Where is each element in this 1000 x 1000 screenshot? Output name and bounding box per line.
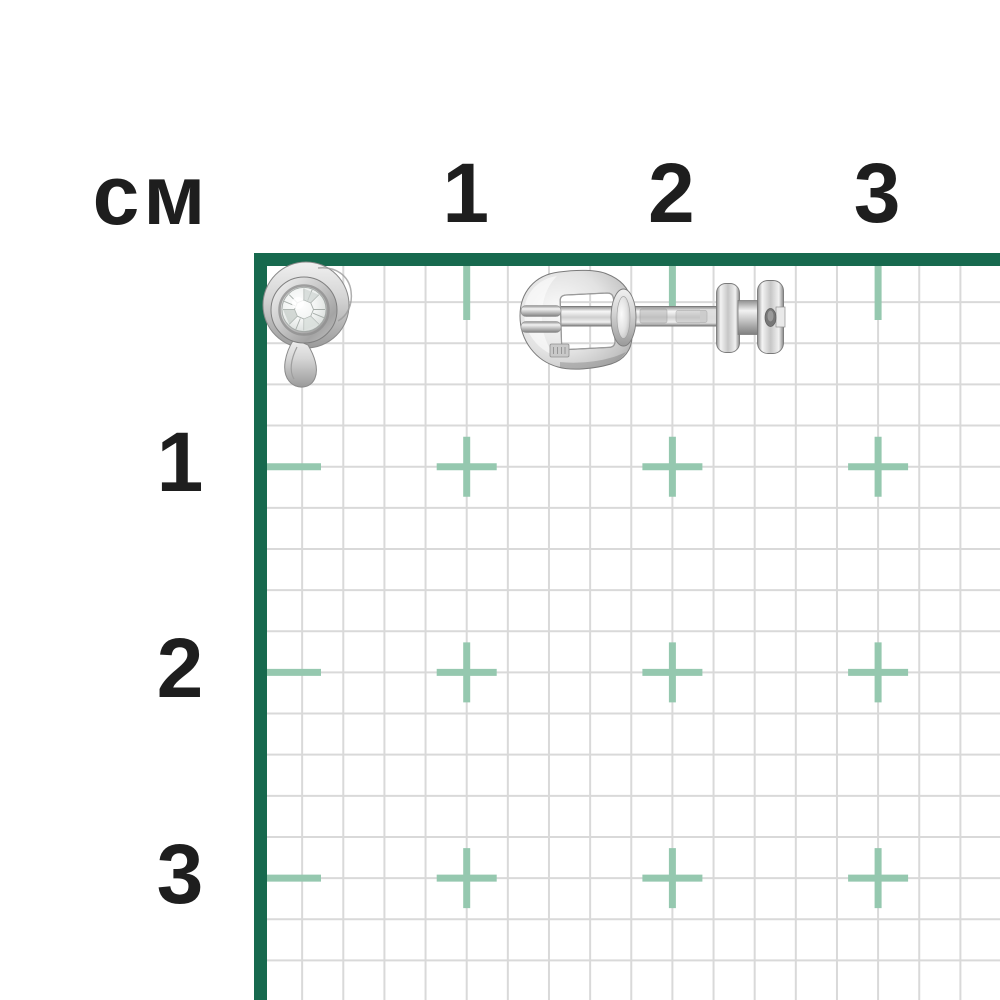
ruler-top-label-1: 1 [442,151,491,235]
earring-back-side-image [520,270,785,369]
ruler-border-and-ticks [254,253,1000,1000]
ruler-left-label-3: 3 [157,832,206,916]
ruler-left-label-2: 2 [157,626,206,710]
hallmark-stamp [550,344,569,357]
ruler-top-label-2: 2 [648,151,697,235]
ruler-top-label-3: 3 [854,151,903,235]
hallmark-stamp [640,309,667,323]
hallmark-stamp [676,311,707,323]
ruler-left-label-1: 1 [157,420,206,504]
unit-label: см [93,153,210,237]
earring-stud-front-image [263,262,351,387]
size-chart: см 1 2 3 1 2 3 [0,0,1000,1000]
minor-grid [254,253,1000,1000]
